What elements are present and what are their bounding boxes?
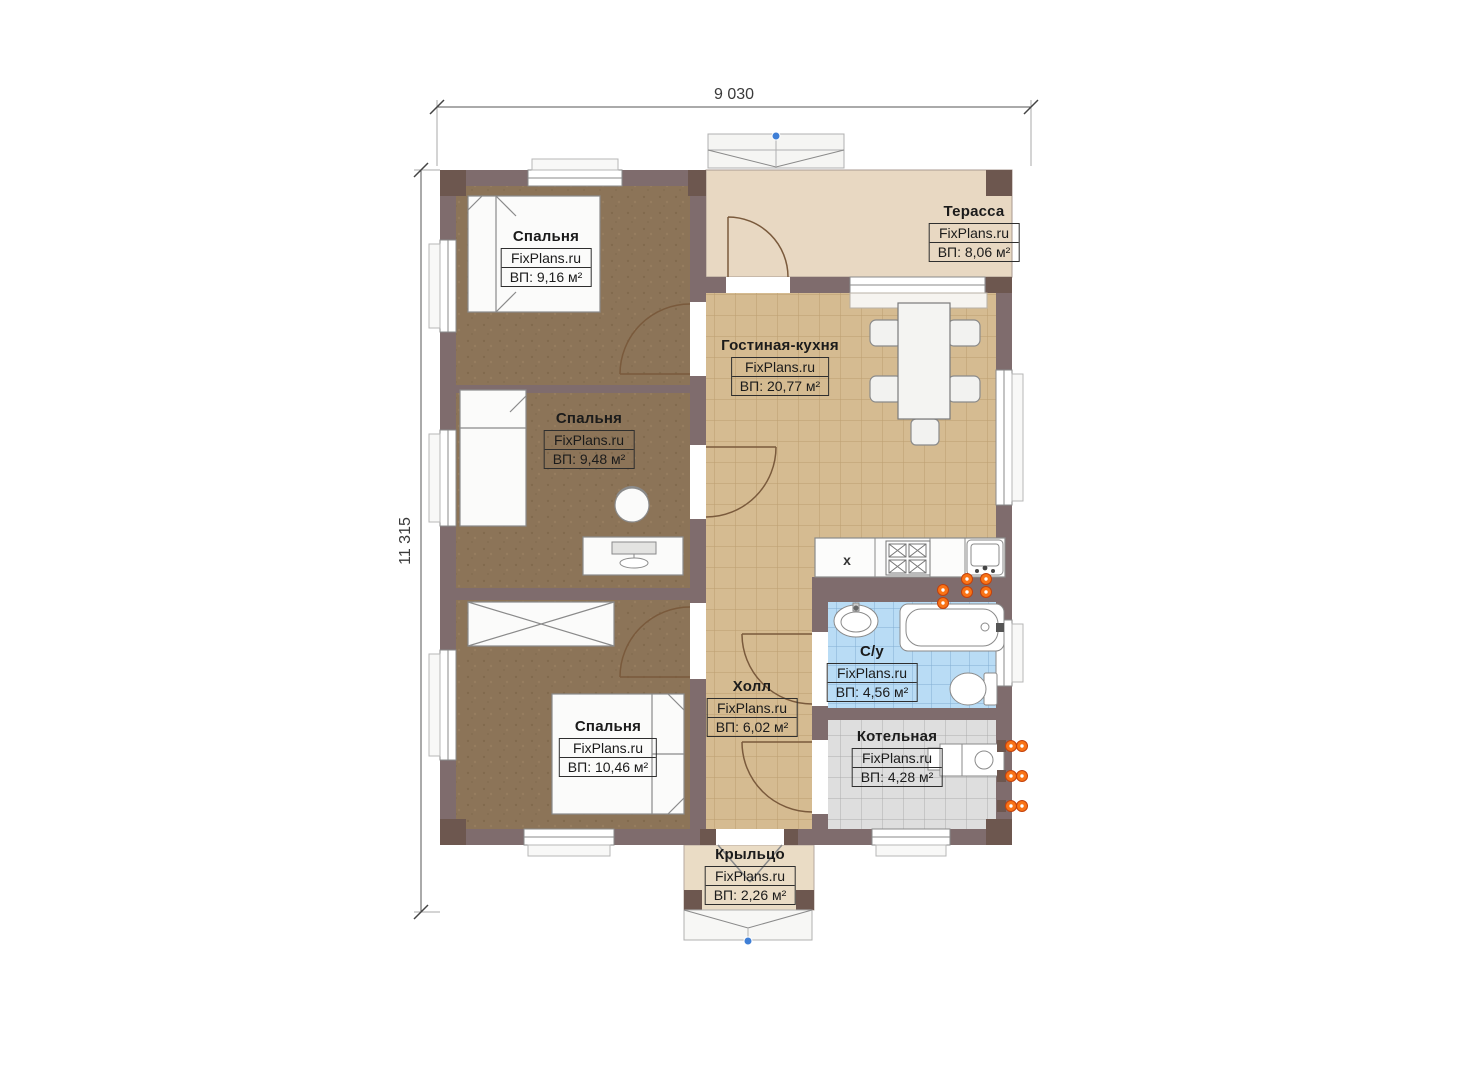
- room-area: ВП: 4,28 м²: [853, 768, 942, 786]
- watermark: FixPlans.ru: [930, 224, 1019, 243]
- watermark: FixPlans.ru: [828, 664, 917, 683]
- floor-plan-page: х: [0, 0, 1474, 1080]
- room-name: Спальня: [501, 228, 592, 245]
- counter-x-marker: х: [843, 552, 851, 568]
- room-info-box: FixPlans.ru ВП: 2,26 м²: [705, 866, 796, 905]
- watermark: FixPlans.ru: [502, 249, 591, 268]
- room-name: С/у: [827, 643, 918, 660]
- room-info-box: FixPlans.ru ВП: 6,02 м²: [707, 698, 798, 737]
- room-area: ВП: 9,16 м²: [502, 268, 591, 286]
- room-label-terrace: Терасса FixPlans.ru ВП: 8,06 м²: [929, 203, 1020, 262]
- room-info-box: FixPlans.ru ВП: 4,28 м²: [852, 748, 943, 787]
- watermark: FixPlans.ru: [853, 749, 942, 768]
- room-label-porch: Крыльцо FixPlans.ru ВП: 2,26 м²: [705, 846, 796, 905]
- roof-canopy-top: [708, 132, 844, 168]
- room-info-box: FixPlans.ru ВП: 9,48 м²: [544, 430, 635, 469]
- room-info-box: FixPlans.ru ВП: 20,77 м²: [731, 357, 829, 396]
- wardrobe-icon: [468, 602, 614, 646]
- room-name: Спальня: [559, 718, 657, 735]
- computer-icon: [612, 542, 656, 554]
- door-opening-boiler: [812, 740, 828, 814]
- room-area: ВП: 4,56 м²: [828, 683, 917, 701]
- chair-icon: [615, 487, 649, 522]
- room-area: ВП: 8,06 м²: [930, 243, 1019, 261]
- room-info-box: FixPlans.ru ВП: 9,16 м²: [501, 248, 592, 287]
- room-area: ВП: 6,02 м²: [708, 718, 797, 736]
- room-label-bathroom: С/у FixPlans.ru ВП: 4,56 м²: [827, 643, 918, 702]
- room-name: Спальня: [544, 410, 635, 427]
- room-info-box: FixPlans.ru ВП: 10,46 м²: [559, 738, 657, 777]
- kitchen-sink-icon: [967, 540, 1003, 575]
- watermark: FixPlans.ru: [545, 431, 634, 450]
- door-opening-bed1: [690, 302, 706, 376]
- dimension-height-label: 11 315: [397, 517, 414, 565]
- door-opening-porch: [716, 829, 784, 845]
- wall-bed2-bed3: [456, 588, 690, 600]
- watermark: FixPlans.ru: [708, 699, 797, 718]
- wall-bath-boiler: [828, 708, 1012, 720]
- kitchen-counter-icon: х: [815, 538, 1005, 577]
- boiler-pipes-icon: [997, 740, 1028, 812]
- desk-icon: [583, 537, 683, 575]
- door-opening-bed2: [690, 445, 706, 519]
- room-name: Котельная: [852, 728, 943, 745]
- door-opening-terrace: [726, 277, 790, 293]
- room-area: ВП: 2,26 м²: [706, 886, 795, 904]
- room-name: Терасса: [929, 203, 1020, 220]
- stove-icon: [886, 541, 930, 575]
- room-info-box: FixPlans.ru ВП: 4,56 м²: [827, 663, 918, 702]
- room-label-boiler: Котельная FixPlans.ru ВП: 4,28 м²: [852, 728, 943, 787]
- room-label-bedroom3: Спальня FixPlans.ru ВП: 10,46 м²: [559, 718, 657, 777]
- room-label-hall: Холл FixPlans.ru ВП: 6,02 м²: [707, 678, 798, 737]
- watermark: FixPlans.ru: [706, 867, 795, 886]
- door-opening-bed3: [690, 603, 706, 679]
- room-info-box: FixPlans.ru ВП: 8,06 м²: [929, 223, 1020, 262]
- roof-canopy-porch: [684, 910, 812, 945]
- room-name: Гостиная-кухня: [721, 337, 839, 354]
- floor-plan-drawing: х: [0, 0, 1474, 1080]
- axis-marker-dot: [744, 937, 752, 945]
- room-label-bedroom1: Спальня FixPlans.ru ВП: 9,16 м²: [501, 228, 592, 287]
- toilet-icon: [950, 673, 997, 705]
- room-area: ВП: 20,77 м²: [732, 377, 828, 395]
- door-opening-bath: [812, 632, 828, 706]
- room-label-living-kitchen: Гостиная-кухня FixPlans.ru ВП: 20,77 м²: [721, 337, 839, 396]
- axis-marker-dot: [772, 132, 780, 140]
- bed-icon: [460, 390, 526, 526]
- room-area: ВП: 10,46 м²: [560, 758, 656, 776]
- room-name: Холл: [707, 678, 798, 695]
- room-name: Крыльцо: [705, 846, 796, 863]
- room-area: ВП: 9,48 м²: [545, 450, 634, 468]
- watermark: FixPlans.ru: [560, 739, 656, 758]
- watermark: FixPlans.ru: [732, 358, 828, 377]
- room-label-bedroom2: Спальня FixPlans.ru ВП: 9,48 м²: [544, 410, 635, 469]
- dimension-width-label: 9 030: [714, 86, 754, 103]
